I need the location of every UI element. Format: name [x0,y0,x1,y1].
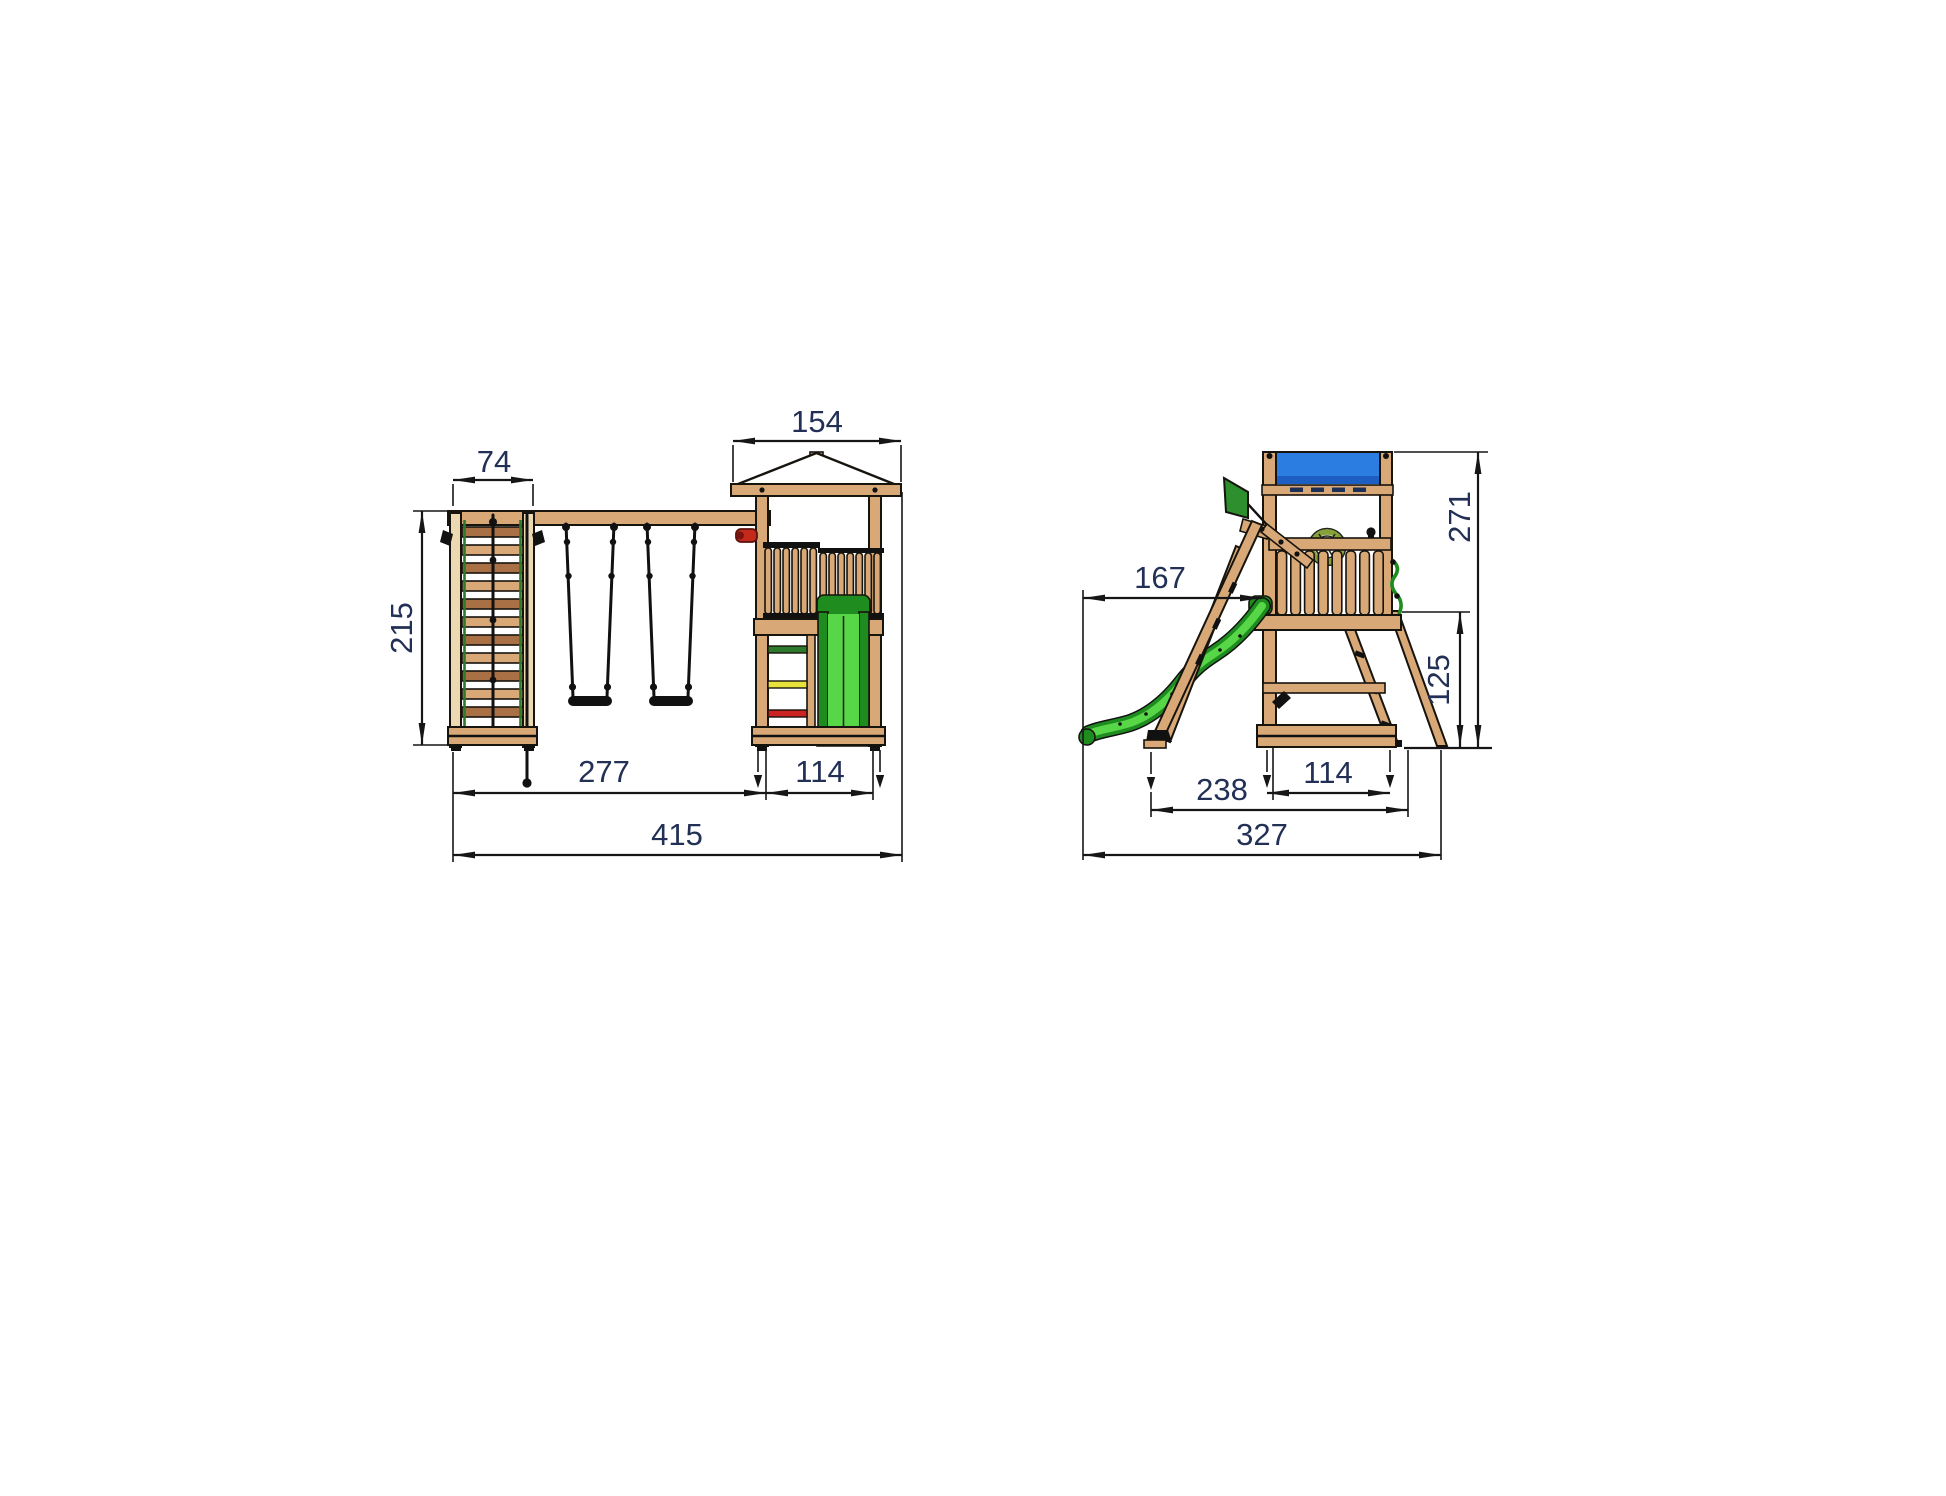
dim-label-swing-span: 277 [578,754,630,789]
dim-label-roof-width: 154 [791,404,843,439]
dimension-swing-span: 277 [453,748,766,862]
dimension-ladder-depth: 238 [1147,750,1408,817]
ladder-front [768,635,815,727]
dimension-height: 215 [384,511,457,745]
dimension-tower-width-front: 114 [766,748,884,800]
dim-label-height: 215 [384,602,419,654]
balustrade-front-left [763,542,820,619]
dim-label-tower-depth: 114 [1303,755,1352,790]
dim-label-platform-height: 125 [1421,654,1456,706]
grip-handle [736,529,757,542]
dimension-total-depth: 327 [1083,750,1441,860]
mid-rail-side [1263,683,1385,693]
platform-side [1255,615,1401,630]
tower-front [731,452,901,751]
dim-label-ladder-depth: 238 [1196,772,1248,807]
dim-label-total-height: 271 [1442,491,1477,543]
swing-seat [568,696,612,706]
swing-seat [649,696,693,706]
slide-front [817,595,870,746]
dim-label-slide-reach: 167 [1134,560,1186,595]
dimension-frame-width: 74 [453,444,533,506]
front-view: 74 154 215 277 114 [384,404,902,862]
swing-right [645,524,697,706]
dim-label-frame-width: 74 [477,444,511,479]
playset-technical-drawing: 74 154 215 277 114 [0,0,1946,1496]
tower-roof [731,452,901,496]
flag-pennant [1224,478,1248,518]
swing-left [564,524,616,706]
dim-label-total-depth: 327 [1236,817,1288,852]
climbing-frame [440,513,545,788]
dim-label-tower-width-front: 114 [795,754,844,789]
dim-label-total-width: 415 [651,817,703,852]
banner [1262,452,1393,495]
drawing-svg: 74 154 215 277 114 [0,0,1946,1496]
dimension-tower-depth: 114 [1263,748,1394,800]
side-view: 167 271 125 114 238 [1079,452,1492,860]
